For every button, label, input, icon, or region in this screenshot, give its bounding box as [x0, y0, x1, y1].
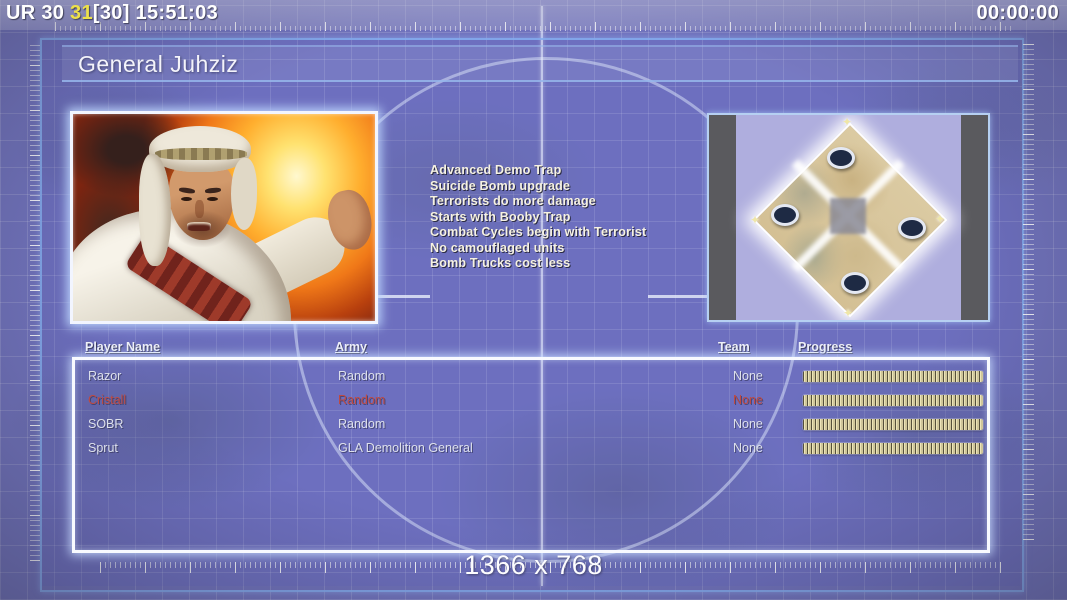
loading-screen: UR 30 31[30] 15:51:03 00:00:00 General J… [0, 0, 1067, 600]
player-name: Sprut [88, 436, 118, 460]
start-position-marker [841, 272, 869, 294]
start-position-marker [898, 217, 926, 239]
corner-star-icon: ✦ [935, 213, 945, 225]
player-name: SOBR [88, 412, 123, 436]
load-progress-fill [803, 395, 983, 406]
player-army: GLA Demolition General [338, 436, 473, 460]
column-header-army: Army [335, 340, 367, 354]
table-row: Cristall Random None [75, 388, 987, 412]
perk-line: No camouflaged units [430, 241, 720, 257]
player-team: None [733, 412, 763, 436]
corner-star-icon: ✦ [750, 214, 760, 226]
match-timer: 00:00:00 [977, 2, 1059, 25]
map-letterbox-bar [709, 115, 736, 320]
load-progress-fill [803, 443, 983, 454]
start-position-marker [771, 204, 799, 226]
column-header-player-name: Player Name [85, 340, 160, 354]
general-perk-list: Advanced Demo Trap Suicide Bomb upgrade … [430, 163, 720, 272]
table-row: Sprut GLA Demolition General None [75, 436, 987, 460]
load-progress-fill [803, 371, 983, 382]
players-table-header: Player Name Army Team Progress [0, 340, 1067, 356]
portrait-eye [207, 197, 218, 201]
load-progress-bar [803, 371, 983, 382]
map-preview: ✦ ✦ ✦ ✦ [707, 113, 990, 322]
load-progress-bar [803, 395, 983, 406]
perk-line: Suicide Bomb upgrade [430, 179, 720, 195]
column-header-progress: Progress [798, 340, 852, 354]
table-row: SOBR Random None [75, 412, 987, 436]
top-status-bar: UR 30 31[30] 15:51:03 00:00:00 [0, 0, 1067, 30]
load-progress-bar [803, 443, 983, 454]
portrait-headband [155, 148, 247, 160]
slot-counter: [30] [93, 2, 136, 24]
load-progress-bar [803, 419, 983, 430]
player-name: Cristall [88, 388, 126, 412]
perk-line: Starts with Booby Trap [430, 210, 720, 226]
map-code-label: UR 30 [6, 2, 70, 24]
players-table: Razor Random None Cristall Random None S… [72, 357, 990, 553]
ready-counter: 31 [70, 2, 93, 24]
perk-line: Bomb Trucks cost less [430, 256, 720, 272]
portrait-nose-shadow [195, 200, 204, 218]
portrait-keffiyeh-drape [231, 158, 257, 230]
lobby-status-text: UR 30 31[30] 15:51:03 [6, 2, 218, 25]
player-army: Random [338, 388, 385, 412]
perk-line: Terrorists do more damage [430, 194, 720, 210]
corner-star-icon: ✦ [843, 307, 853, 319]
table-row: Razor Random None [75, 364, 987, 388]
title-band: General Juhziz [62, 45, 1018, 82]
perk-line: Advanced Demo Trap [430, 163, 720, 179]
player-army: Random [338, 364, 385, 388]
start-position-marker [827, 147, 855, 169]
perk-line: Combat Cycles begin with Terrorist [430, 225, 720, 241]
player-team: None [733, 436, 763, 460]
player-name: Razor [88, 364, 121, 388]
map-letterbox-bar [961, 115, 988, 320]
page-title: General Juhziz [78, 51, 238, 78]
player-team: None [733, 388, 763, 412]
portrait-eye [181, 197, 192, 201]
clock-label: 15:51:03 [136, 2, 218, 24]
portrait-mouth [187, 222, 211, 231]
player-team: None [733, 364, 763, 388]
corner-star-icon: ✦ [842, 116, 852, 128]
player-army: Random [338, 412, 385, 436]
column-header-team: Team [718, 340, 750, 354]
map-center-area [830, 198, 866, 234]
resolution-label: 1366 x 768 [0, 550, 1067, 581]
load-progress-fill [803, 419, 983, 430]
general-portrait-image [70, 111, 378, 324]
